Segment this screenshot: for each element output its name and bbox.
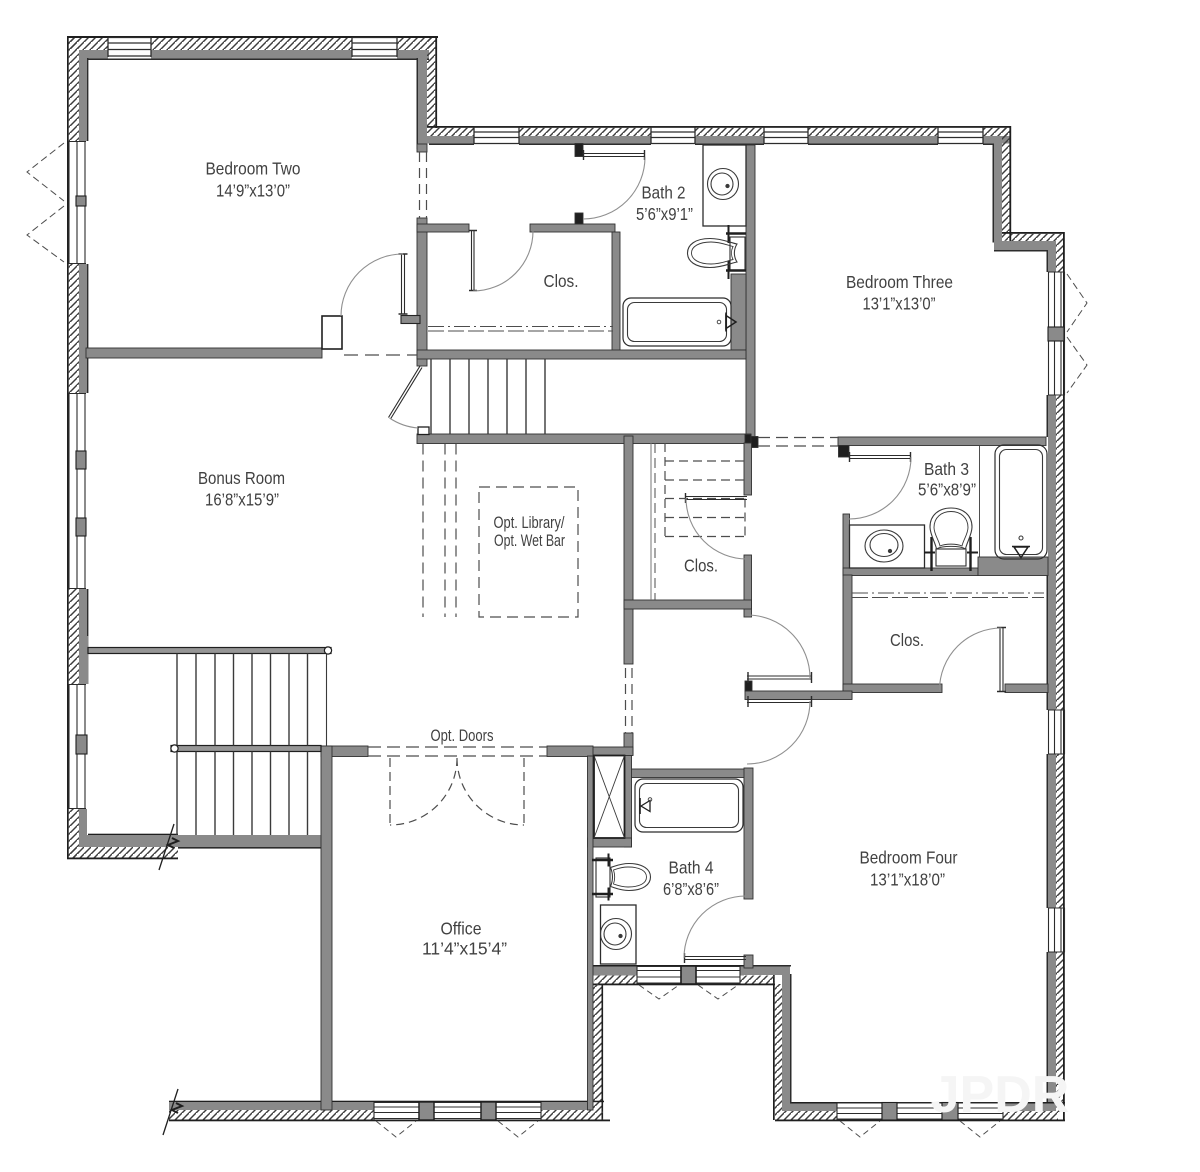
- svg-text:Clos.: Clos.: [684, 556, 718, 576]
- svg-text:Clos.: Clos.: [890, 630, 924, 650]
- svg-text:JPDR: JPDR: [931, 1066, 1070, 1124]
- svg-text:Bedroom Four: Bedroom Four: [860, 847, 958, 867]
- svg-text:Bonus Room: Bonus Room: [198, 468, 285, 488]
- svg-text:13’1”x18’0”: 13’1”x18’0”: [870, 869, 945, 889]
- svg-text:Bath 2: Bath 2: [642, 183, 686, 203]
- svg-text:14’9”x13’0”: 14’9”x13’0”: [216, 180, 290, 200]
- svg-text:Office: Office: [441, 918, 482, 938]
- svg-text:Opt. Library/: Opt. Library/: [494, 514, 565, 532]
- svg-text:Bedroom Three: Bedroom Three: [846, 272, 953, 292]
- svg-text:6’8”x8’6”: 6’8”x8’6”: [663, 879, 719, 899]
- svg-text:5’6”x9’1”: 5’6”x9’1”: [636, 204, 693, 224]
- svg-text:Bedroom Two: Bedroom Two: [206, 159, 301, 179]
- svg-text:Opt. Doors: Opt. Doors: [431, 727, 494, 745]
- svg-text:Bath 3: Bath 3: [924, 459, 969, 479]
- svg-text:16’8”x15’9”: 16’8”x15’9”: [205, 490, 279, 510]
- svg-text:Clos.: Clos.: [544, 271, 579, 291]
- svg-text:11’4”x15’4”: 11’4”x15’4”: [422, 939, 507, 959]
- svg-text:Opt. Wet Bar: Opt. Wet Bar: [494, 532, 565, 550]
- svg-text:13’1”x13’0”: 13’1”x13’0”: [863, 294, 936, 314]
- svg-text:Bath 4: Bath 4: [669, 858, 714, 878]
- svg-text:5’6”x8’9”: 5’6”x8’9”: [918, 480, 976, 500]
